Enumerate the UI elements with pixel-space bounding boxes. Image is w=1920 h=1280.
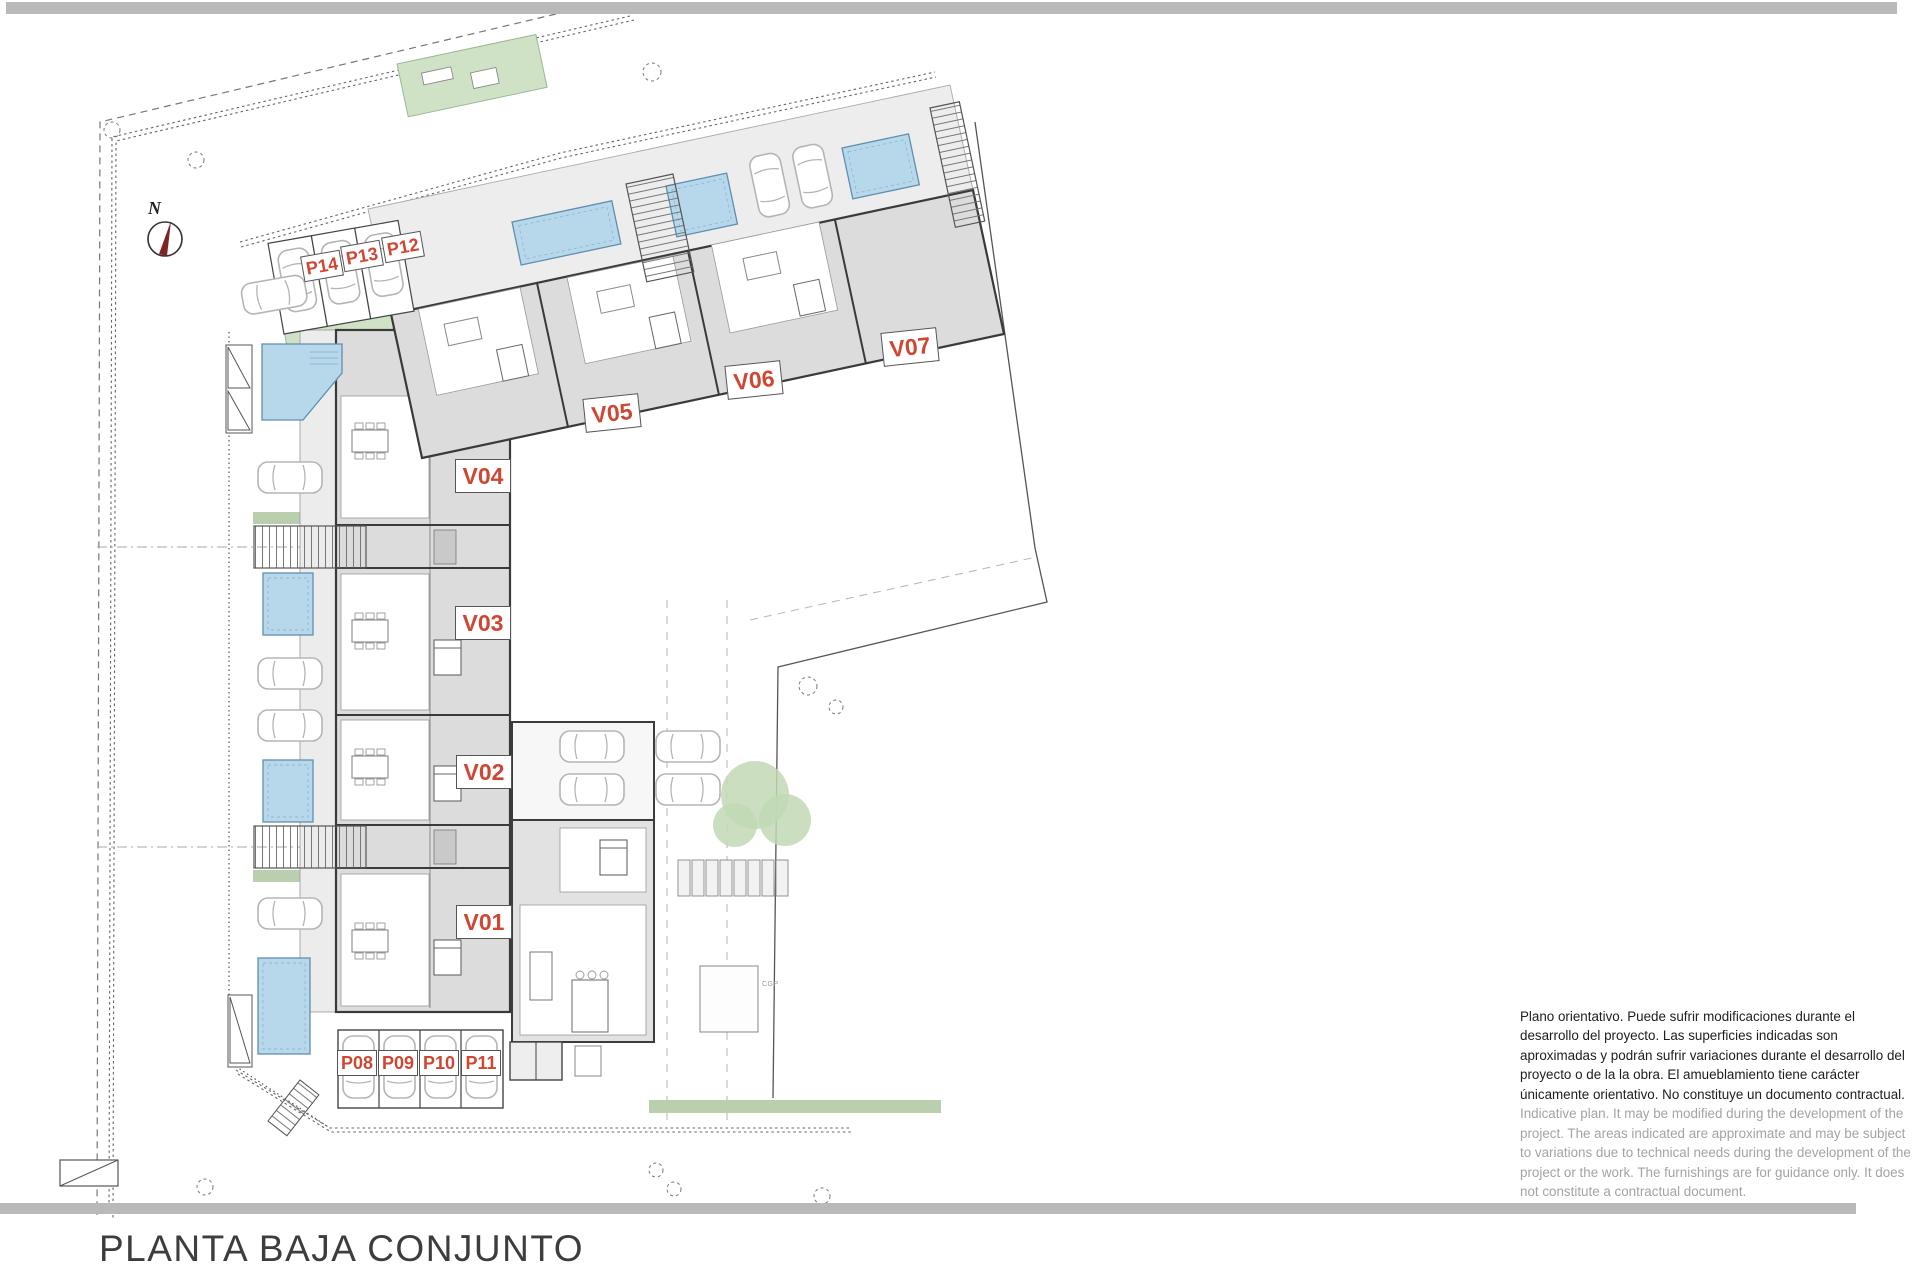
unit-label-v05: V05	[582, 393, 641, 433]
unit-label-v06: V06	[724, 360, 783, 400]
unit-label-v01: V01	[456, 905, 512, 939]
unit-label-v07: V07	[880, 327, 939, 367]
unit-label-v02: V02	[456, 755, 512, 789]
parking-label-p10: P10	[419, 1050, 459, 1076]
cgp-annotation: CGP	[762, 981, 779, 988]
parking-label-p11: P11	[461, 1050, 501, 1076]
page-title: PLANTA BAJA CONJUNTO	[99, 1228, 584, 1270]
disclaimer-english: Indicative plan. It may be modified duri…	[1520, 1104, 1916, 1201]
disclaimer-spanish: Plano orientativo. Puede sufrir modifica…	[1520, 1007, 1916, 1104]
bottom-divider-bar	[0, 1203, 1856, 1214]
tree-icon	[713, 761, 811, 847]
ramp-symbol	[60, 1160, 118, 1186]
north-label: N	[148, 198, 161, 219]
parking-label-p09: P09	[378, 1050, 418, 1076]
top-divider-bar	[6, 2, 1897, 14]
north-compass	[148, 221, 182, 256]
floor-plan-sheet: N V01 V02 V03 V04 V05 V06 V07 P08 P09 P1…	[0, 0, 1920, 1280]
parking-label-p08: P08	[337, 1050, 377, 1076]
top-wing-building	[368, 85, 1004, 458]
unit-label-v03: V03	[455, 606, 511, 640]
pergola	[678, 860, 788, 896]
disclaimer-block: Plano orientativo. Puede sufrir modifica…	[1520, 1007, 1916, 1201]
unit-label-v04: V04	[455, 459, 511, 493]
